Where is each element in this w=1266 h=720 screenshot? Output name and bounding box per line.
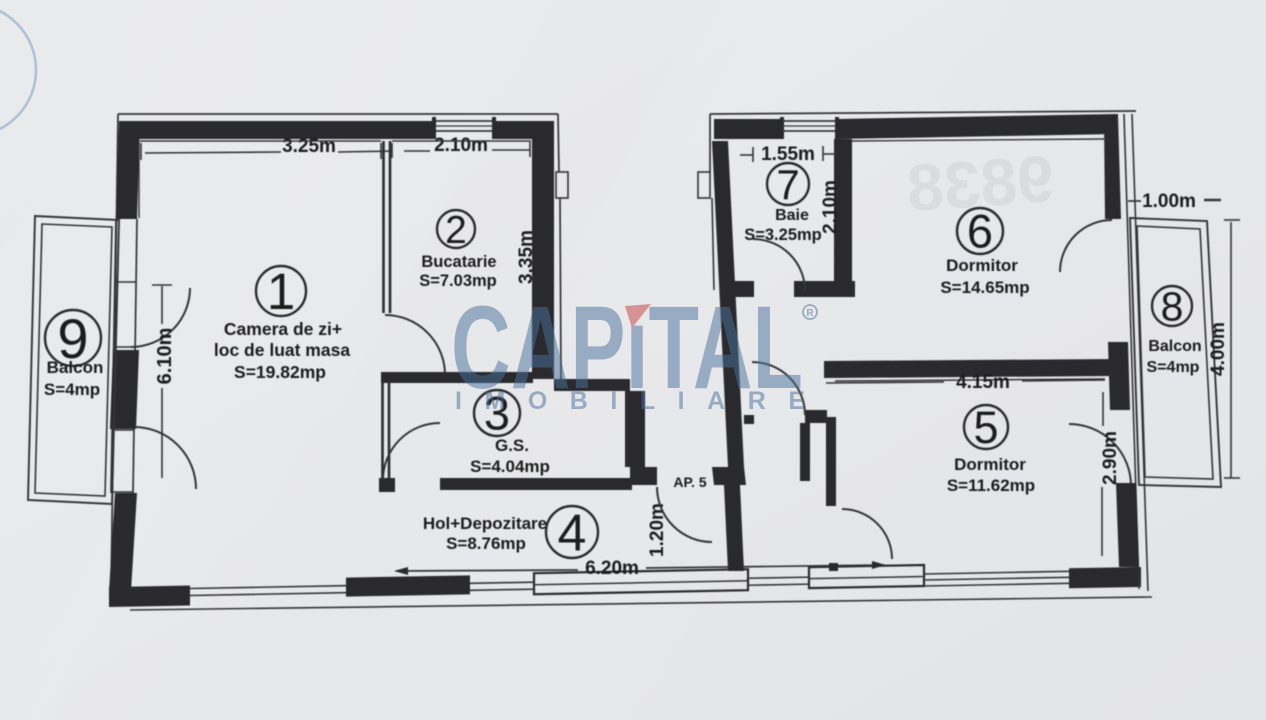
svg-text:1.00m: 1.00m [1142,191,1196,212]
svg-text:2: 2 [445,209,467,252]
svg-text:4: 4 [558,504,587,562]
svg-text:6.20m: 6.20m [585,558,639,579]
svg-text:4.00m: 4.00m [1208,322,1229,376]
svg-text:Baie: Baie [775,207,809,224]
svg-text:8: 8 [1161,284,1184,330]
svg-text:2.10m: 2.10m [434,135,488,156]
svg-text:Balcon: Balcon [47,358,104,377]
svg-text:S=11.62mp: S=11.62mp [947,476,1035,495]
svg-text:5: 5 [973,402,998,453]
svg-text:Balcon: Balcon [1148,338,1201,355]
svg-text:S=8.76mp: S=8.76mp [446,534,526,553]
svg-text:Bucatarie: Bucatarie [421,253,496,271]
svg-text:loc de luat masa: loc de luat masa [214,340,350,360]
svg-text:R: R [806,308,814,319]
svg-text:S=19.82mp: S=19.82mp [234,362,326,382]
svg-text:2.90m: 2.90m [1100,431,1121,485]
svg-text:S=4mp: S=4mp [1147,359,1200,376]
svg-text:S=14.65mp: S=14.65mp [940,278,1029,297]
svg-text:Hol+Depozitare: Hol+Depozitare [423,514,547,533]
svg-text:Camera de zi+: Camera de zi+ [224,319,342,339]
svg-text:7: 7 [776,161,799,208]
svg-text:6.10m: 6.10m [154,328,176,385]
svg-text:1: 1 [267,263,295,320]
svg-text:1.20m: 1.20m [647,503,668,557]
svg-text:AP. 5: AP. 5 [673,474,706,490]
svg-text:3.25m: 3.25m [282,136,336,157]
svg-text:S=4mp: S=4mp [44,380,100,399]
svg-text:6: 6 [967,205,993,258]
svg-text:S=3.25mp: S=3.25mp [744,226,822,244]
svg-text:2.10m: 2.10m [820,180,841,234]
svg-text:S=4.04mp: S=4.04mp [470,457,550,476]
svg-text:Dormitor: Dormitor [946,256,1018,275]
svg-text:Dormitor: Dormitor [954,455,1026,474]
svg-text:G.S.: G.S. [495,436,529,455]
svg-text:4.15m: 4.15m [956,372,1010,393]
